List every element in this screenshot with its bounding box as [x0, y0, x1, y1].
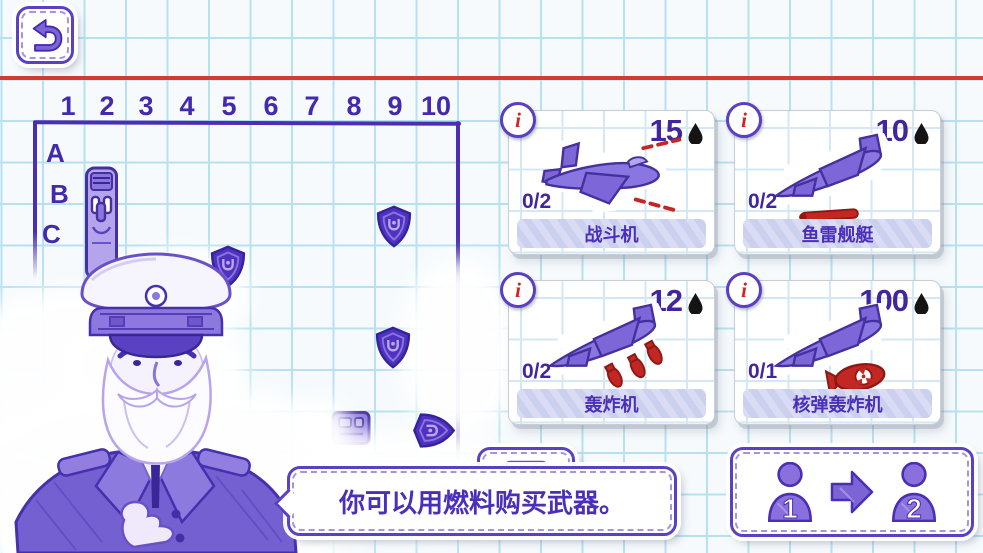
- col-header: 3: [138, 91, 153, 122]
- col-header: 2: [99, 91, 114, 122]
- hint-tooltip: 你可以用燃料购买武器。: [287, 466, 677, 536]
- player-2-icon: 2: [889, 462, 939, 522]
- info-icon: i: [515, 278, 521, 303]
- col-header: 8: [346, 91, 361, 122]
- player-1-icon: 1: [765, 462, 815, 522]
- fighter-jet-art: [531, 133, 691, 228]
- turn-arrow-icon: [829, 468, 875, 516]
- player-number: 2: [906, 493, 922, 522]
- undo-arrow-icon: [25, 15, 65, 55]
- weapon-label: 战斗机: [517, 219, 706, 248]
- owned-count: 0/2: [522, 190, 551, 214]
- col-header: 4: [179, 91, 194, 122]
- weapon-card-torpedo[interactable]: i 10 0/2 鱼雷舰艇: [734, 110, 941, 255]
- col-header: 6: [263, 91, 278, 122]
- back-button[interactable]: [16, 6, 74, 64]
- weapon-card-bomber[interactable]: i 12 0/2 轰炸机: [508, 280, 715, 425]
- weapon-label: 核弹轰炸机: [743, 389, 932, 418]
- hint-text: 你可以用燃料购买武器。: [339, 483, 625, 520]
- captain-illustration: [6, 250, 302, 553]
- owned-count: 0/1: [748, 360, 777, 384]
- weapon-card-nuclear-bomber[interactable]: i 100 0/1 核弹轰炸机: [734, 280, 941, 425]
- info-icon: i: [741, 108, 747, 133]
- weapon-label: 鱼雷舰艇: [743, 219, 932, 248]
- weapon-label: 轰炸机: [517, 389, 706, 418]
- col-header: 7: [304, 91, 319, 122]
- col-header: 1: [60, 91, 75, 122]
- paper-margin-line: [0, 76, 983, 80]
- player-number: 1: [782, 493, 798, 522]
- nuclear-bomber-art: [757, 303, 917, 398]
- col-header: 9: [387, 91, 402, 122]
- mine-icon: [372, 325, 414, 370]
- mine-icon: [412, 410, 457, 452]
- col-header: 5: [221, 91, 236, 122]
- game-screen: 1 2 3 4 5 6 7 8 9 10 A B C: [0, 0, 983, 553]
- owned-count: 0/2: [748, 190, 777, 214]
- weapon-card-fighter[interactable]: i 15 0/2 战斗机: [508, 110, 715, 255]
- turn-indicator-panel[interactable]: 1 2: [730, 447, 974, 537]
- col-header: 10: [421, 91, 451, 122]
- info-icon: i: [741, 278, 747, 303]
- info-icon: i: [515, 108, 521, 133]
- bomber-plane-art: [531, 303, 691, 398]
- owned-count: 0/2: [522, 360, 551, 384]
- torpedo-plane-art: [757, 133, 917, 228]
